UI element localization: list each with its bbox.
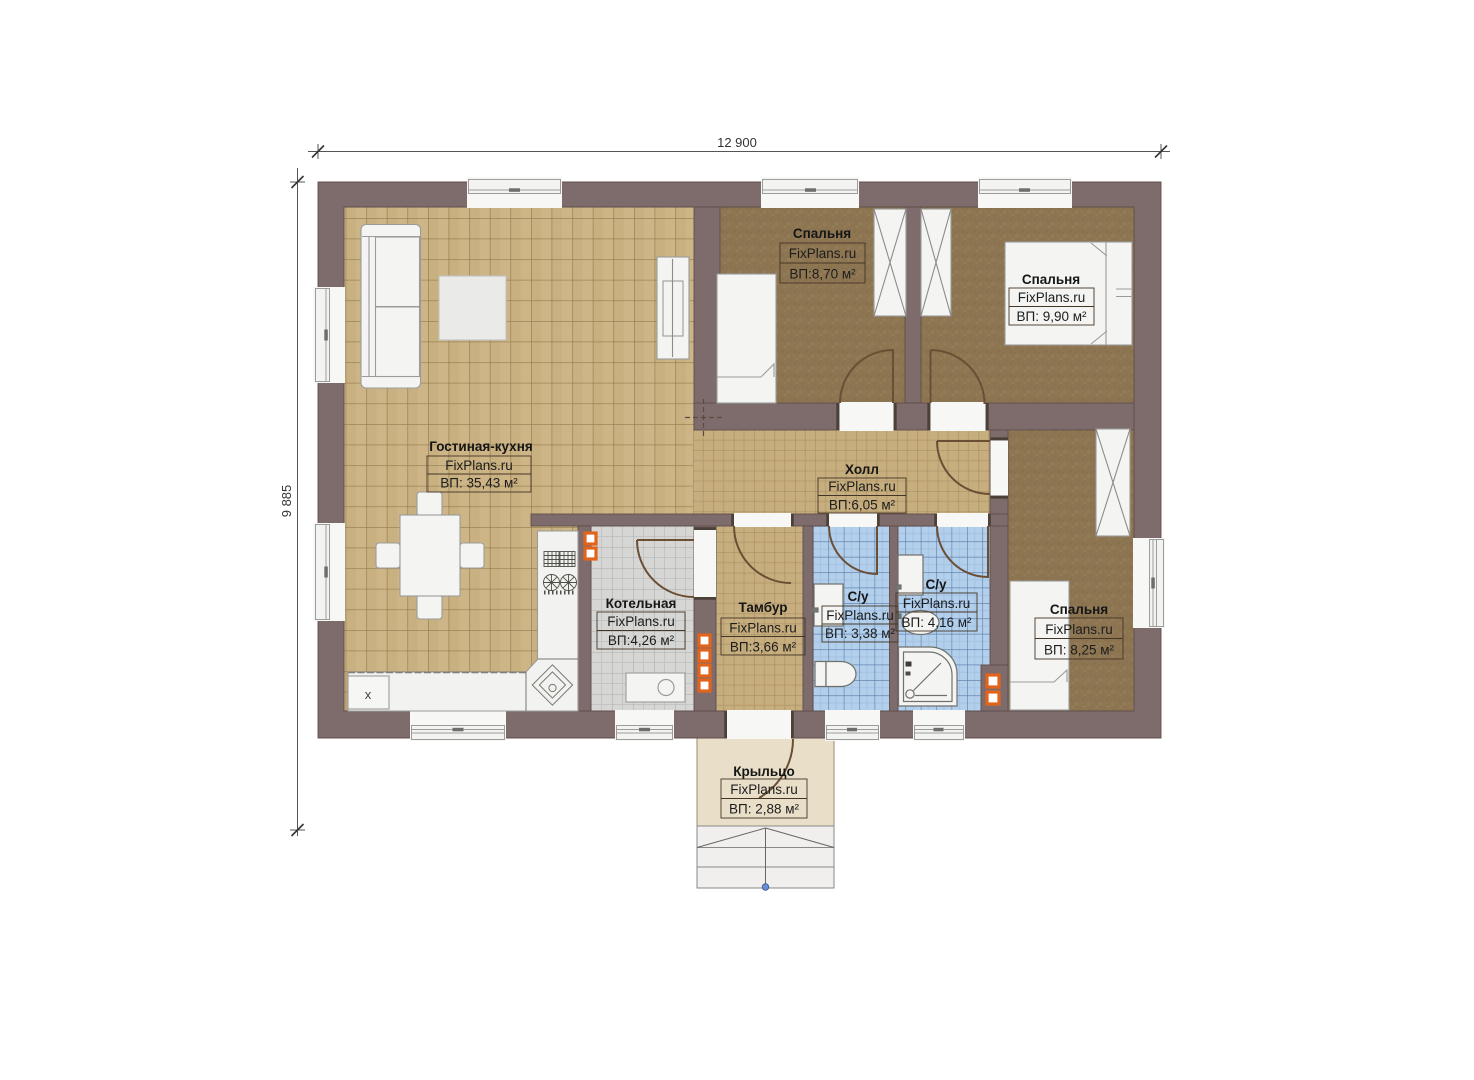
svg-text:FixPlans.ru: FixPlans.ru: [607, 614, 675, 629]
svg-text:ВП:6,05 м²: ВП:6,05 м²: [829, 498, 896, 513]
svg-text:FixPlans.ru: FixPlans.ru: [1045, 622, 1113, 637]
svg-text:Тамбур: Тамбур: [739, 600, 788, 615]
svg-text:ВП: 3,38 м²: ВП: 3,38 м²: [825, 626, 896, 641]
svg-text:Котельная: Котельная: [606, 596, 677, 611]
svg-text:ВП: 4,16 м²: ВП: 4,16 м²: [901, 615, 972, 630]
svg-text:FixPlans.ru: FixPlans.ru: [828, 479, 896, 494]
svg-text:ВП: 9,90 м²: ВП: 9,90 м²: [1016, 309, 1087, 324]
svg-text:ВП: 2,88 м²: ВП: 2,88 м²: [729, 802, 800, 817]
svg-text:FixPlans.ru: FixPlans.ru: [729, 621, 797, 636]
svg-text:С/у: С/у: [847, 589, 869, 604]
svg-text:x: x: [365, 687, 372, 702]
svg-text:FixPlans.ru: FixPlans.ru: [826, 608, 894, 623]
svg-text:ВП:4,26 м²: ВП:4,26 м²: [608, 633, 675, 648]
svg-text:FixPlans.ru: FixPlans.ru: [903, 596, 971, 611]
svg-text:ВП: 8,25 м²: ВП: 8,25 м²: [1044, 643, 1115, 658]
svg-text:Холл: Холл: [845, 462, 879, 477]
svg-text:9 885: 9 885: [279, 485, 294, 518]
svg-text:ВП: 35,43 м²: ВП: 35,43 м²: [440, 476, 518, 491]
svg-text:12 900: 12 900: [717, 135, 757, 150]
svg-text:FixPlans.ru: FixPlans.ru: [1018, 290, 1086, 305]
svg-text:FixPlans.ru: FixPlans.ru: [445, 458, 513, 473]
svg-text:Крыльцо: Крыльцо: [733, 764, 794, 779]
svg-text:FixPlans.ru: FixPlans.ru: [789, 246, 857, 261]
svg-text:Спальня: Спальня: [793, 226, 851, 241]
svg-text:ВП:8,70 м²: ВП:8,70 м²: [789, 267, 856, 282]
svg-text:ВП:3,66 м²: ВП:3,66 м²: [730, 640, 797, 655]
svg-text:FixPlans.ru: FixPlans.ru: [730, 782, 798, 797]
svg-text:Спальня: Спальня: [1050, 602, 1108, 617]
svg-text:Гостиная-кухня: Гостиная-кухня: [429, 439, 532, 454]
svg-text:С/у: С/у: [925, 577, 947, 592]
svg-text:Спальня: Спальня: [1022, 272, 1080, 287]
